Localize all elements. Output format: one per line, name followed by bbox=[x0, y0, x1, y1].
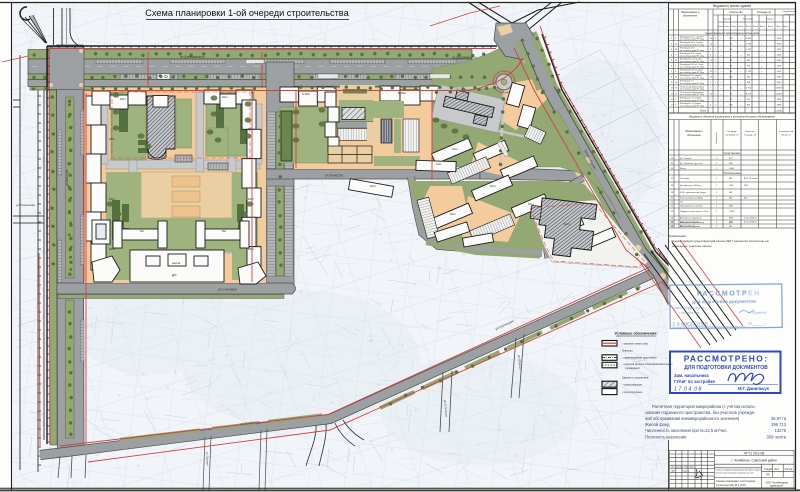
svg-text:ДС "Солнышко" дет. ясли: ДС "Солнышко" дет. ясли bbox=[680, 163, 702, 165]
svg-text:по генплану, серия 97. Инд.: по генплану, серия 97. Инд. bbox=[680, 39, 705, 41]
svg-text:Авто-крытая, подземная: Авто-крытая, подземная bbox=[680, 217, 701, 220]
svg-text:—: — bbox=[720, 99, 722, 101]
svg-text:М.Г. Данильчук: М.Г. Данильчук bbox=[738, 386, 770, 391]
svg-text:—: — bbox=[740, 104, 742, 106]
svg-text:Расчётная территория микрорайо: Расчётная территория микрорайона (с учёт… bbox=[652, 404, 757, 409]
svg-text:Блок обслуживания (Мкр): Блок обслуживания (Мкр) bbox=[680, 198, 703, 200]
svg-text:16эт: 16эт bbox=[109, 137, 115, 141]
svg-text:Площадь: Площадь bbox=[727, 131, 736, 133]
svg-text:—: — bbox=[761, 38, 763, 40]
svg-text:Схема планировки 1-ой очереди: Схема планировки 1-ой очереди строительс… bbox=[145, 8, 349, 18]
svg-text:зования подземного пространств: зования подземного пространства, без уча… bbox=[645, 410, 756, 415]
svg-text:Всего: Всего bbox=[753, 26, 758, 28]
svg-text:296 713: 296 713 bbox=[771, 422, 787, 427]
svg-text:ПП: ПП bbox=[766, 473, 770, 477]
svg-text:г.Челябинска: г.Челябинска bbox=[679, 311, 700, 315]
svg-text:1 132: 1 132 bbox=[746, 49, 752, 51]
svg-text:объём, м³: объём, м³ bbox=[784, 13, 793, 16]
svg-text:Стадия: Стадия bbox=[764, 468, 773, 471]
svg-text:Квартир: Квартир bbox=[723, 19, 732, 21]
svg-text:20______г.: 20______г. bbox=[748, 322, 766, 326]
svg-text:Плотность населения: Плотность населения bbox=[645, 435, 686, 440]
svg-text:по генплану, серия 97. Инд.: по генплану, серия 97. Инд. bbox=[680, 55, 705, 57]
svg-text:Зам. начальника: Зам. начальника bbox=[674, 373, 709, 378]
svg-text:Школа: Школа bbox=[680, 168, 687, 170]
svg-text:Проектируемые: Проектируемые bbox=[723, 173, 741, 175]
svg-text:340: 340 bbox=[744, 198, 747, 200]
svg-text:340: 340 bbox=[729, 226, 732, 228]
svg-text:Площадь, м²: Площадь, м² bbox=[757, 11, 771, 14]
svg-text:- красные линии улиц: - красные линии улиц bbox=[622, 343, 649, 346]
svg-text:Примечание:: Примечание: bbox=[668, 234, 687, 238]
svg-text:—: — bbox=[720, 93, 722, 95]
svg-text:Наименование и: Наименование и bbox=[685, 131, 704, 133]
svg-text:по генплану, серия 97. Инд.: по генплану, серия 97. Инд. bbox=[680, 44, 705, 46]
svg-text:—: — bbox=[730, 82, 732, 84]
svg-text:г. Челябинск, Советский район: г. Челябинск, Советский район bbox=[731, 459, 776, 463]
svg-text:Юрина: Юрина bbox=[682, 471, 690, 473]
svg-text:Торг.-развлекат. комплекс: Торг.-развлекат. комплекс bbox=[680, 206, 703, 208]
svg-text:Главный архитектор: Главный архитектор bbox=[672, 306, 704, 310]
svg-text:28426: 28426 bbox=[776, 93, 782, 95]
svg-text:застройки, м²: застройки, м² bbox=[726, 134, 739, 137]
svg-text:ДС "Тополёк": ДС "Тополёк" bbox=[680, 158, 692, 160]
svg-text:1. Реконструкция существующей: 1. Реконструкция существующей школы №17 … bbox=[668, 239, 769, 243]
svg-text:ул.Лучистая: ул.Лучистая bbox=[325, 174, 343, 178]
svg-text:по генплану, серия 97. Инд.: по генплану, серия 97. Инд. bbox=[680, 61, 705, 63]
svg-text:ул.Дзержинского: ул.Дзержинского bbox=[452, 55, 477, 59]
svg-text:ул.Томинская: ул.Томинская bbox=[16, 203, 35, 207]
svg-text:—: — bbox=[740, 66, 742, 68]
svg-text:13276: 13276 bbox=[775, 428, 787, 433]
svg-text:—: — bbox=[740, 77, 742, 79]
svg-text:Строительный: Строительный bbox=[782, 10, 796, 13]
svg-text:Схема планировки 1-ой очереди: Схема планировки 1-ой очереди bbox=[716, 479, 756, 483]
svg-text:—: — bbox=[761, 93, 763, 95]
svg-text:5эт: 5эт bbox=[222, 229, 227, 233]
svg-text:4635: 4635 bbox=[729, 206, 733, 208]
svg-text:Авто-стоянка открытая: Авто-стоянка открытая bbox=[680, 225, 700, 228]
svg-text:Гостиница: Гостиница bbox=[680, 178, 690, 180]
svg-text:—: — bbox=[761, 88, 763, 90]
svg-text:школа: школа bbox=[172, 261, 181, 265]
svg-text:- участков детских общеобразо: - участков детских общеобразовательных bbox=[622, 362, 673, 366]
svg-text:ДЛЯ ПОДГОТОВКИ ДОКУМЕНТОВ: ДЛЯ ПОДГОТОВКИ ДОКУМЕНТОВ bbox=[684, 365, 768, 371]
svg-text:Количество: Количество bbox=[730, 11, 744, 14]
svg-text:Всего: Всего bbox=[725, 26, 730, 28]
svg-text:10эт: 10эт bbox=[452, 147, 458, 151]
svg-text:—: — bbox=[761, 54, 763, 56]
svg-text:2 сбл.=7845 м²: 2 сбл.=7845 м² bbox=[744, 217, 757, 220]
svg-text:Ведомость жилых зданий: Ведомость жилых зданий bbox=[713, 4, 751, 8]
svg-text:—: — bbox=[720, 49, 722, 51]
svg-text:—: — bbox=[761, 60, 763, 62]
svg-text:Условные обозначения:: Условные обозначения: bbox=[614, 332, 657, 336]
svg-text:16эт: 16эт bbox=[248, 247, 254, 251]
svg-text:486: 486 bbox=[729, 178, 732, 180]
svg-text:земельных участках школы: земельных участках школы bbox=[672, 244, 712, 248]
svg-text:по генплану, серия 97. Инд.: по генплану, серия 97. Инд. bbox=[680, 78, 705, 80]
svg-text:—: — bbox=[761, 77, 763, 79]
svg-text:—: — bbox=[740, 54, 742, 56]
svg-text:ФОК с крытым катком (ледов.: ФОК с крытым катком (ледов. bbox=[680, 191, 707, 194]
svg-text:—: — bbox=[720, 54, 722, 56]
svg-text:1236: 1236 bbox=[729, 185, 733, 187]
svg-text:Количество: Количество bbox=[716, 132, 718, 144]
svg-text:—: — bbox=[720, 38, 722, 40]
svg-text:1 7 .0 4 .0 8: 1 7 .0 4 .0 8 bbox=[674, 387, 702, 393]
svg-text:2046: 2046 bbox=[729, 168, 735, 170]
svg-text:- проектируемой территории: - проектируемой территории bbox=[622, 355, 657, 359]
svg-text:16эт: 16эт bbox=[248, 127, 254, 131]
svg-text:Численность населения при N=22: Численность населения при N=22,5 м²/чел. bbox=[645, 428, 728, 433]
svg-text:—: — bbox=[740, 38, 742, 40]
svg-text:10эт: 10эт bbox=[564, 222, 570, 226]
svg-text:Листов: Листов bbox=[785, 468, 793, 471]
svg-text:—: — bbox=[740, 93, 742, 95]
svg-text:Жилой фонд: Жилой фонд bbox=[645, 422, 670, 427]
svg-text:10эт: 10эт bbox=[450, 212, 456, 216]
svg-text:486: 486 bbox=[729, 192, 732, 194]
svg-text:1 080: 1 080 bbox=[746, 38, 752, 40]
svg-text:ГАП: ГАП bbox=[671, 470, 675, 473]
svg-text:по генплану, серия 97. Инд.: по генплану, серия 97. Инд. bbox=[680, 105, 705, 107]
svg-text:10эт: 10эт bbox=[120, 97, 126, 101]
svg-text:№11 в Советском районе г.Челяб: №11 в Советском районе г.Челябинска. ПП bbox=[716, 472, 755, 475]
svg-text:обозначение: обозначение bbox=[683, 15, 698, 18]
svg-text:Схема планировки микрорайона №: Схема планировки микрорайона №6 жилого р… bbox=[716, 469, 763, 472]
svg-text:Здания и сооружения:: Здания и сооружения: bbox=[622, 375, 649, 379]
svg-text:Застройки: Застройки bbox=[743, 18, 754, 21]
svg-text:9-10эт: 9-10эт bbox=[398, 91, 407, 95]
svg-text:по генплану, серия 97. Инд.: по генплану, серия 97. Инд. bbox=[680, 50, 705, 52]
svg-text:ний обслуживания внемикрорайон: ний обслуживания внемикрорайонного значе… bbox=[645, 416, 740, 421]
svg-text:Ведомость объектов социального: Ведомость объектов социального и культур… bbox=[689, 115, 775, 119]
svg-text:ВОЗ. 16 этажей: ВОЗ. 16 этажей bbox=[744, 177, 758, 180]
svg-text:ул.Вагнера: ул.Вагнера bbox=[65, 169, 69, 186]
svg-text:Детский сад на 190 мест: Детский сад на 190 мест bbox=[680, 184, 702, 187]
svg-text:Всего: Всего bbox=[746, 26, 751, 28]
svg-text:359 чел/га: 359 чел/га bbox=[767, 435, 787, 440]
svg-text:6 сбл.=1936 м²: 6 сбл.=1936 м² bbox=[744, 221, 757, 224]
svg-text:ЧГТ1 201-08: ЧГТ1 201-08 bbox=[744, 452, 765, 456]
svg-text:Строительный: Строительный bbox=[779, 130, 794, 133]
svg-text:для подготовки документов: для подготовки документов bbox=[692, 299, 756, 305]
svg-text:Итого: Итого bbox=[700, 111, 707, 113]
svg-text:Всего: Всего bbox=[760, 26, 765, 28]
svg-text:Лист №докум. Подп. Дата: Лист №докум. Подп. Дата bbox=[671, 466, 696, 469]
svg-text:—: — bbox=[720, 71, 722, 73]
svg-text:—: — bbox=[740, 71, 742, 73]
svg-text:Н. Юдченко: Н. Юдченко bbox=[748, 311, 767, 315]
svg-text:ул.Озимая: ул.Озимая bbox=[205, 452, 210, 466]
svg-text:—: — bbox=[740, 49, 742, 51]
svg-text:1 290: 1 290 bbox=[746, 43, 752, 45]
svg-text:Границы:: Границы: bbox=[622, 349, 633, 353]
svg-text:466: 466 bbox=[729, 198, 732, 200]
svg-text:Всего: Всего bbox=[784, 26, 789, 28]
svg-text:—: — bbox=[761, 104, 763, 106]
svg-text:по генплану, серия 97. Инд.: по генплану, серия 97. Инд. bbox=[680, 72, 705, 74]
svg-text:ул.Сосновая: ул.Сосновая bbox=[218, 288, 237, 292]
svg-text:5 762: 5 762 bbox=[746, 88, 752, 90]
svg-text:16эт: 16эт bbox=[248, 197, 254, 201]
svg-text:—: — bbox=[740, 43, 742, 45]
svg-text:д/с: д/с bbox=[172, 273, 177, 277]
svg-text:по генплану, серия 97. Инд.: по генплану, серия 97. Инд. bbox=[680, 94, 705, 96]
svg-text:—: — bbox=[720, 66, 722, 68]
svg-text:- проектируемые: - проектируемые bbox=[622, 391, 643, 394]
svg-text:Подземная автостоянка на 50 м: Подземная автостоянка на 50 м bbox=[680, 211, 709, 213]
svg-text:9-10эт: 9-10эт bbox=[302, 92, 311, 96]
svg-text:ул.Дзержинского: ул.Дзержинского bbox=[180, 55, 205, 59]
svg-text:по генплану, серия 97. Инд.: по генплану, серия 97. Инд. bbox=[680, 100, 705, 102]
svg-text:10эт: 10эт bbox=[222, 95, 228, 99]
svg-text:РАССМОТРЕНО:: РАССМОТРЕНО: bbox=[684, 354, 769, 364]
svg-text:5эт: 5эт bbox=[140, 229, 145, 233]
svg-text:Всего: Всего bbox=[732, 26, 737, 28]
svg-text:—: — bbox=[720, 43, 722, 45]
svg-text:—: — bbox=[720, 82, 722, 84]
svg-text:—: — bbox=[761, 82, 763, 84]
svg-text:—: — bbox=[720, 77, 722, 79]
svg-text:обозначение: обозначение bbox=[687, 135, 701, 137]
svg-text:Всего: Всего bbox=[739, 26, 744, 28]
svg-text:Полезная: Полезная bbox=[745, 131, 754, 133]
svg-text:—: — bbox=[720, 104, 722, 106]
svg-text:10эт: 10эт bbox=[490, 184, 496, 188]
svg-text:—: — bbox=[761, 66, 763, 68]
svg-text:Существующие и проектируемые ж: Существующие и проектируемые жилые дома bbox=[705, 32, 760, 35]
svg-text:Лист: Лист bbox=[774, 468, 780, 471]
svg-text:219664: 219664 bbox=[776, 111, 784, 113]
svg-text:по генплану, серия 97. Инд.: по генплану, серия 97. Инд. bbox=[680, 67, 705, 69]
svg-text:учреждений: учреждений bbox=[625, 366, 640, 370]
svg-text:17368: 17368 bbox=[729, 211, 734, 213]
svg-text:249: 249 bbox=[729, 222, 732, 224]
svg-text:—: — bbox=[761, 43, 763, 45]
svg-text:Всего: Всего bbox=[777, 26, 782, 28]
svg-text:—: — bbox=[720, 60, 722, 62]
svg-text:строительства, М 1:2000: строительства, М 1:2000 bbox=[716, 483, 746, 487]
svg-text:1375: 1375 bbox=[744, 185, 748, 187]
svg-text:Существующие: Существующие bbox=[724, 153, 741, 155]
svg-text:Всего: Всего bbox=[768, 26, 773, 28]
svg-text:—: — bbox=[720, 88, 722, 90]
svg-text:—: — bbox=[740, 82, 742, 84]
svg-text:по генплану, серия 97. Инд.: по генплану, серия 97. Инд. bbox=[680, 83, 705, 85]
svg-text:Всего: Всего bbox=[718, 26, 723, 28]
svg-text:объём, м³: объём, м³ bbox=[781, 134, 791, 137]
svg-text:3926: 3926 bbox=[729, 218, 733, 220]
svg-text:площадь, м²: площадь, м² bbox=[744, 134, 756, 137]
svg-text:36,97 га: 36,97 га bbox=[771, 416, 787, 421]
svg-text:- существующие: - существующие bbox=[622, 383, 642, 386]
svg-text:10эт: 10эт bbox=[528, 202, 534, 206]
svg-text:—: — bbox=[730, 54, 732, 56]
svg-text:Сал: Сал bbox=[436, 162, 442, 166]
svg-text:Авто-приёмн. жилой сектор: Авто-приёмн. жилой сектор bbox=[680, 221, 704, 224]
svg-text:129026: 129026 bbox=[776, 88, 784, 90]
svg-text:—: — bbox=[740, 60, 742, 62]
svg-text:по генплану, серия 97. Инд.: по генплану, серия 97. Инд. bbox=[680, 89, 705, 91]
svg-text:жданпроект": жданпроект" bbox=[770, 485, 784, 488]
svg-text:—: — bbox=[761, 71, 763, 73]
svg-text:8 210: 8 210 bbox=[746, 93, 752, 95]
svg-text:ГУАиГ по застройке: ГУАиГ по застройке bbox=[674, 379, 716, 384]
svg-text:Общая: Общая bbox=[767, 19, 774, 21]
svg-text:16эт: 16эт bbox=[109, 197, 115, 201]
svg-text:—: — bbox=[761, 99, 763, 101]
svg-text:16эт: 16эт bbox=[109, 247, 115, 251]
svg-text:10эт: 10эт bbox=[370, 184, 376, 188]
svg-text:—: — bbox=[740, 88, 742, 90]
svg-text:—: — bbox=[761, 49, 763, 51]
svg-text:—: — bbox=[740, 99, 742, 101]
